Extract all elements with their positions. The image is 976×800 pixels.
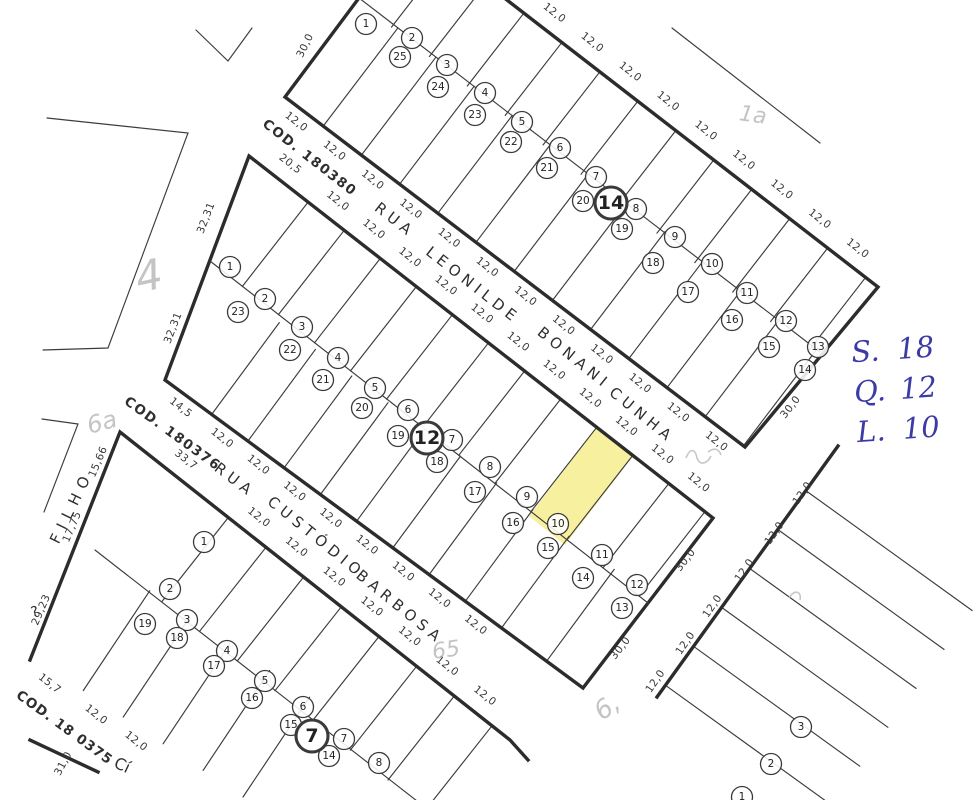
lot-boundary-line — [806, 491, 972, 611]
svg-text:18: 18 — [170, 632, 183, 644]
pencil-squiggle — [789, 592, 800, 600]
svg-text:16: 16 — [245, 692, 259, 704]
svg-text:30,0: 30,0 — [673, 546, 698, 573]
lot-boundary-line — [476, 144, 551, 242]
lot-boundary-line — [248, 349, 316, 441]
svg-text:7: 7 — [593, 171, 600, 183]
svg-text:10: 10 — [705, 258, 718, 270]
lot-boundary-line — [667, 290, 742, 388]
svg-text:4: 4 — [224, 645, 231, 657]
annotation-quadra-label: Q. — [853, 370, 892, 412]
lot-boundary-line — [459, 371, 525, 455]
svg-text:1: 1 — [363, 18, 370, 30]
svg-text:2: 2 — [262, 293, 269, 305]
svg-text:19: 19 — [615, 223, 628, 235]
svg-text:17: 17 — [468, 486, 481, 498]
lot-boundary-line — [315, 258, 381, 342]
svg-text:4: 4 — [335, 352, 342, 364]
svg-text:19: 19 — [138, 618, 151, 630]
svg-text:23: 23 — [231, 306, 244, 318]
lot-number-circles: 1234567891011121325242322212019181716151… — [135, 14, 829, 800]
svg-text:12,0: 12,0 — [685, 470, 712, 495]
svg-text:7: 7 — [305, 725, 318, 747]
svg-text:9: 9 — [672, 231, 679, 243]
svg-text:12,0: 12,0 — [768, 177, 795, 202]
pencil-squiggle — [686, 451, 711, 464]
lot-boundary-line — [705, 319, 780, 417]
lot-boundary-line — [426, 726, 492, 800]
svg-text:1: 1 — [739, 791, 746, 800]
svg-text:15: 15 — [284, 719, 297, 731]
svg-text:25: 25 — [393, 51, 406, 63]
svg-text:5: 5 — [262, 675, 269, 687]
svg-text:12: 12 — [630, 579, 643, 591]
svg-text:1: 1 — [201, 536, 208, 548]
lot-boundary-line — [750, 569, 916, 689]
svg-text:8: 8 — [633, 203, 640, 215]
svg-text:12,0: 12,0 — [122, 729, 149, 754]
svg-text:22: 22 — [283, 344, 296, 356]
svg-text:2: 2 — [167, 583, 174, 595]
lot-boundary-line — [629, 261, 704, 359]
svg-text:5: 5 — [372, 382, 379, 394]
lot-boundary-line — [388, 696, 454, 780]
svg-text:20: 20 — [355, 402, 368, 414]
svg-text:20: 20 — [576, 195, 589, 207]
svg-text:6: 6 — [557, 142, 564, 154]
lot-boundary-line — [694, 646, 860, 766]
svg-text:5: 5 — [519, 116, 526, 128]
svg-text:8: 8 — [376, 757, 383, 769]
lot-boundary-line — [619, 131, 676, 204]
svg-text:12: 12 — [779, 315, 792, 327]
svg-text:30,0: 30,0 — [608, 634, 633, 661]
svg-text:12,0: 12,0 — [616, 59, 643, 84]
svg-text:12,0: 12,0 — [649, 442, 676, 467]
svg-text:12,0: 12,0 — [471, 683, 498, 708]
lot-boundary-line — [278, 230, 344, 314]
annotation-setor-label: S. — [850, 330, 889, 372]
lot-boundary-line — [323, 28, 398, 126]
svg-text:3: 3 — [299, 321, 306, 333]
handwritten-annotation: S.18 Q.12 L.10 — [850, 324, 976, 452]
svg-text:3: 3 — [444, 59, 451, 71]
lot-boundary-line — [429, 0, 485, 56]
svg-text:12,0: 12,0 — [579, 30, 606, 55]
svg-text:7: 7 — [449, 434, 456, 446]
svg-text:CUNHA: CUNHA — [606, 383, 679, 447]
lot-boundary-line — [423, 343, 489, 427]
svg-text:12,0: 12,0 — [82, 702, 109, 727]
lot-boundary-line — [438, 115, 513, 213]
svg-text:15,7: 15,7 — [36, 671, 63, 696]
lot-boundary-line — [320, 403, 388, 495]
svg-text:12,0: 12,0 — [806, 207, 833, 232]
lot-boundary-line — [393, 456, 461, 548]
lot-boundary-line — [275, 607, 341, 691]
lot-boundary-line — [400, 86, 475, 184]
lot-boundary-line — [591, 232, 666, 330]
svg-text:14: 14 — [798, 364, 812, 376]
lot-boundary-line — [313, 637, 379, 721]
svg-text:6,: 6, — [589, 688, 627, 727]
svg-text:18: 18 — [646, 257, 659, 269]
lot-boundary-line — [505, 43, 561, 116]
svg-text:12,0: 12,0 — [396, 245, 423, 270]
lot-boundary-line — [212, 323, 280, 415]
svg-text:10: 10 — [551, 518, 564, 530]
lot-boundary-line — [722, 607, 888, 727]
svg-text:2: 2 — [768, 758, 775, 770]
annotation-lote-value: 10 — [902, 409, 941, 445]
svg-text:12,0: 12,0 — [844, 236, 871, 261]
svg-text:13: 13 — [615, 602, 628, 614]
lot-boundary-line — [581, 102, 638, 175]
svg-text:15: 15 — [541, 542, 554, 554]
svg-text:8: 8 — [487, 461, 494, 473]
svg-text:9: 9 — [524, 491, 531, 503]
lot-boundary-line — [242, 202, 308, 286]
parcel-line — [196, 28, 252, 61]
lot-boundary-line — [666, 685, 832, 800]
lot-boundary-line — [83, 591, 150, 691]
svg-text:13: 13 — [811, 341, 824, 353]
lot-boundary-line — [695, 190, 751, 263]
svg-text:11: 11 — [740, 287, 753, 299]
annotation-quadra-value: 12 — [899, 369, 938, 405]
lot-boundary-line — [200, 547, 266, 631]
svg-text:12: 12 — [414, 427, 440, 449]
svg-text:CUSTÓDIO: CUSTÓDIO — [264, 492, 369, 582]
svg-text:23: 23 — [468, 109, 481, 121]
svg-text:16: 16 — [506, 517, 520, 529]
svg-text:7: 7 — [341, 733, 348, 745]
plat-map: 12,012,012,012,012,012,012,012,012,012,0… — [0, 0, 976, 800]
svg-text:6: 6 — [300, 701, 307, 713]
svg-text:21: 21 — [316, 374, 329, 386]
lot-boundary-line — [237, 577, 303, 661]
svg-text:1a: 1a — [738, 101, 769, 130]
svg-text:12,0: 12,0 — [730, 148, 757, 173]
lot-boundary-line — [467, 13, 523, 86]
lot-boundary-line — [387, 315, 453, 399]
svg-text:30,0: 30,0 — [294, 32, 316, 60]
svg-text:11: 11 — [595, 549, 608, 561]
lot-boundary-line — [392, 0, 448, 27]
lot-boundary-line — [543, 72, 600, 145]
svg-text:22: 22 — [504, 136, 517, 148]
svg-text:12,0: 12,0 — [654, 89, 681, 114]
annotation-lote-label: L. — [856, 410, 895, 452]
svg-text:4: 4 — [482, 87, 489, 99]
svg-text:16: 16 — [725, 314, 739, 326]
lot-boundary-line — [514, 174, 589, 272]
svg-text:14: 14 — [576, 572, 590, 584]
annotation-lote: L.10 — [856, 404, 976, 452]
svg-text:6: 6 — [405, 404, 412, 416]
lot-boundary-line — [657, 161, 713, 234]
svg-text:30,0: 30,0 — [778, 393, 803, 420]
parcel-line — [43, 118, 188, 350]
svg-text:1: 1 — [227, 261, 234, 273]
svg-text:15: 15 — [762, 341, 775, 353]
svg-text:12,0: 12,0 — [505, 329, 532, 354]
svg-text:18: 18 — [430, 456, 443, 468]
lot-boundary-line — [733, 219, 789, 292]
svg-text:12,0: 12,0 — [643, 667, 667, 695]
svg-text:14: 14 — [598, 192, 624, 214]
cadastral-map-page: 12,012,012,012,012,012,012,012,012,012,0… — [0, 0, 976, 800]
svg-text:6a: 6a — [84, 405, 120, 440]
lot-boundary-line — [429, 483, 497, 575]
lot-boundary-line — [361, 57, 436, 155]
svg-text:19: 19 — [391, 430, 404, 442]
svg-text:3: 3 — [798, 721, 805, 733]
svg-text:3: 3 — [184, 614, 191, 626]
svg-text:12,0: 12,0 — [541, 0, 568, 25]
svg-text:12,0: 12,0 — [692, 118, 719, 143]
svg-text:65: 65 — [430, 636, 461, 665]
svg-text:32,31: 32,31 — [195, 201, 218, 236]
lot-boundary-line — [771, 249, 827, 322]
svg-text:17: 17 — [207, 660, 220, 672]
svg-text:24: 24 — [431, 81, 445, 93]
annotation-setor-value: 18 — [896, 330, 935, 366]
lot-boundary-line — [778, 530, 944, 650]
svg-text:21: 21 — [540, 162, 553, 174]
block-outline — [30, 432, 528, 760]
svg-text:14: 14 — [322, 750, 336, 762]
lot-boundary-line — [495, 399, 561, 483]
svg-text:17: 17 — [681, 286, 694, 298]
svg-text:4: 4 — [131, 249, 167, 302]
lot-boundary-line — [350, 666, 416, 750]
svg-text:2: 2 — [409, 32, 416, 44]
lot-boundary-line — [351, 287, 417, 371]
